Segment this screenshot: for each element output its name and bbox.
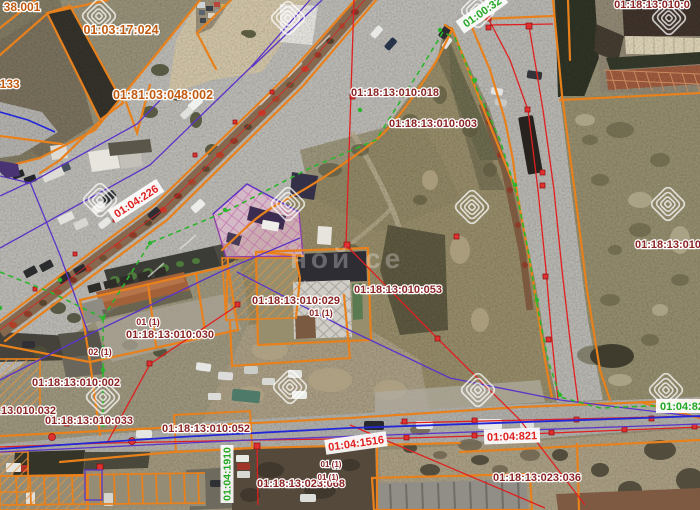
svg-text:ной се: ной се bbox=[290, 243, 404, 274]
svg-text:01:03:17:024: 01:03:17:024 bbox=[83, 23, 158, 37]
svg-text:01 (1): 01 (1) bbox=[309, 308, 333, 318]
svg-text:01:18:13:010:033: 01:18:13:010:033 bbox=[45, 415, 133, 427]
svg-text:01:18:13:010:0: 01:18:13:010:0 bbox=[614, 0, 690, 11]
svg-text:01:04:82: 01:04:82 bbox=[660, 401, 700, 413]
svg-text:38.001: 38.001 bbox=[4, 0, 41, 14]
svg-text:02 (1): 02 (1) bbox=[88, 347, 112, 357]
svg-text:01 (1): 01 (1) bbox=[136, 317, 160, 327]
svg-text:01:18:13:010:052: 01:18:13:010:052 bbox=[162, 423, 250, 435]
svg-text:01:18:13:010:018: 01:18:13:010:018 bbox=[351, 87, 439, 99]
svg-text:01:81:03:048:002: 01:81:03:048:002 bbox=[113, 88, 213, 102]
svg-text:01:18:13:010:029: 01:18:13:010:029 bbox=[252, 295, 340, 307]
svg-text:01:18:13:010: 01:18:13:010 bbox=[635, 239, 700, 251]
svg-text:01:18:13:010:003: 01:18:13:010:003 bbox=[389, 118, 477, 130]
svg-text:01:18:13:010:002: 01:18:13:010:002 bbox=[32, 377, 120, 389]
svg-text:01:18:13:010:030: 01:18:13:010:030 bbox=[126, 329, 214, 341]
svg-text:01:04:821: 01:04:821 bbox=[487, 430, 538, 444]
svg-text:.133: .133 bbox=[0, 77, 20, 91]
svg-text:01:18:13:023:036: 01:18:13:023:036 bbox=[493, 472, 581, 484]
svg-text:01:18:13:010:053: 01:18:13:010:053 bbox=[354, 284, 442, 296]
svg-text:01:04:1910: 01:04:1910 bbox=[222, 447, 234, 501]
svg-text:01 (1): 01 (1) bbox=[318, 473, 339, 482]
svg-text:01 (1): 01 (1) bbox=[321, 460, 342, 469]
